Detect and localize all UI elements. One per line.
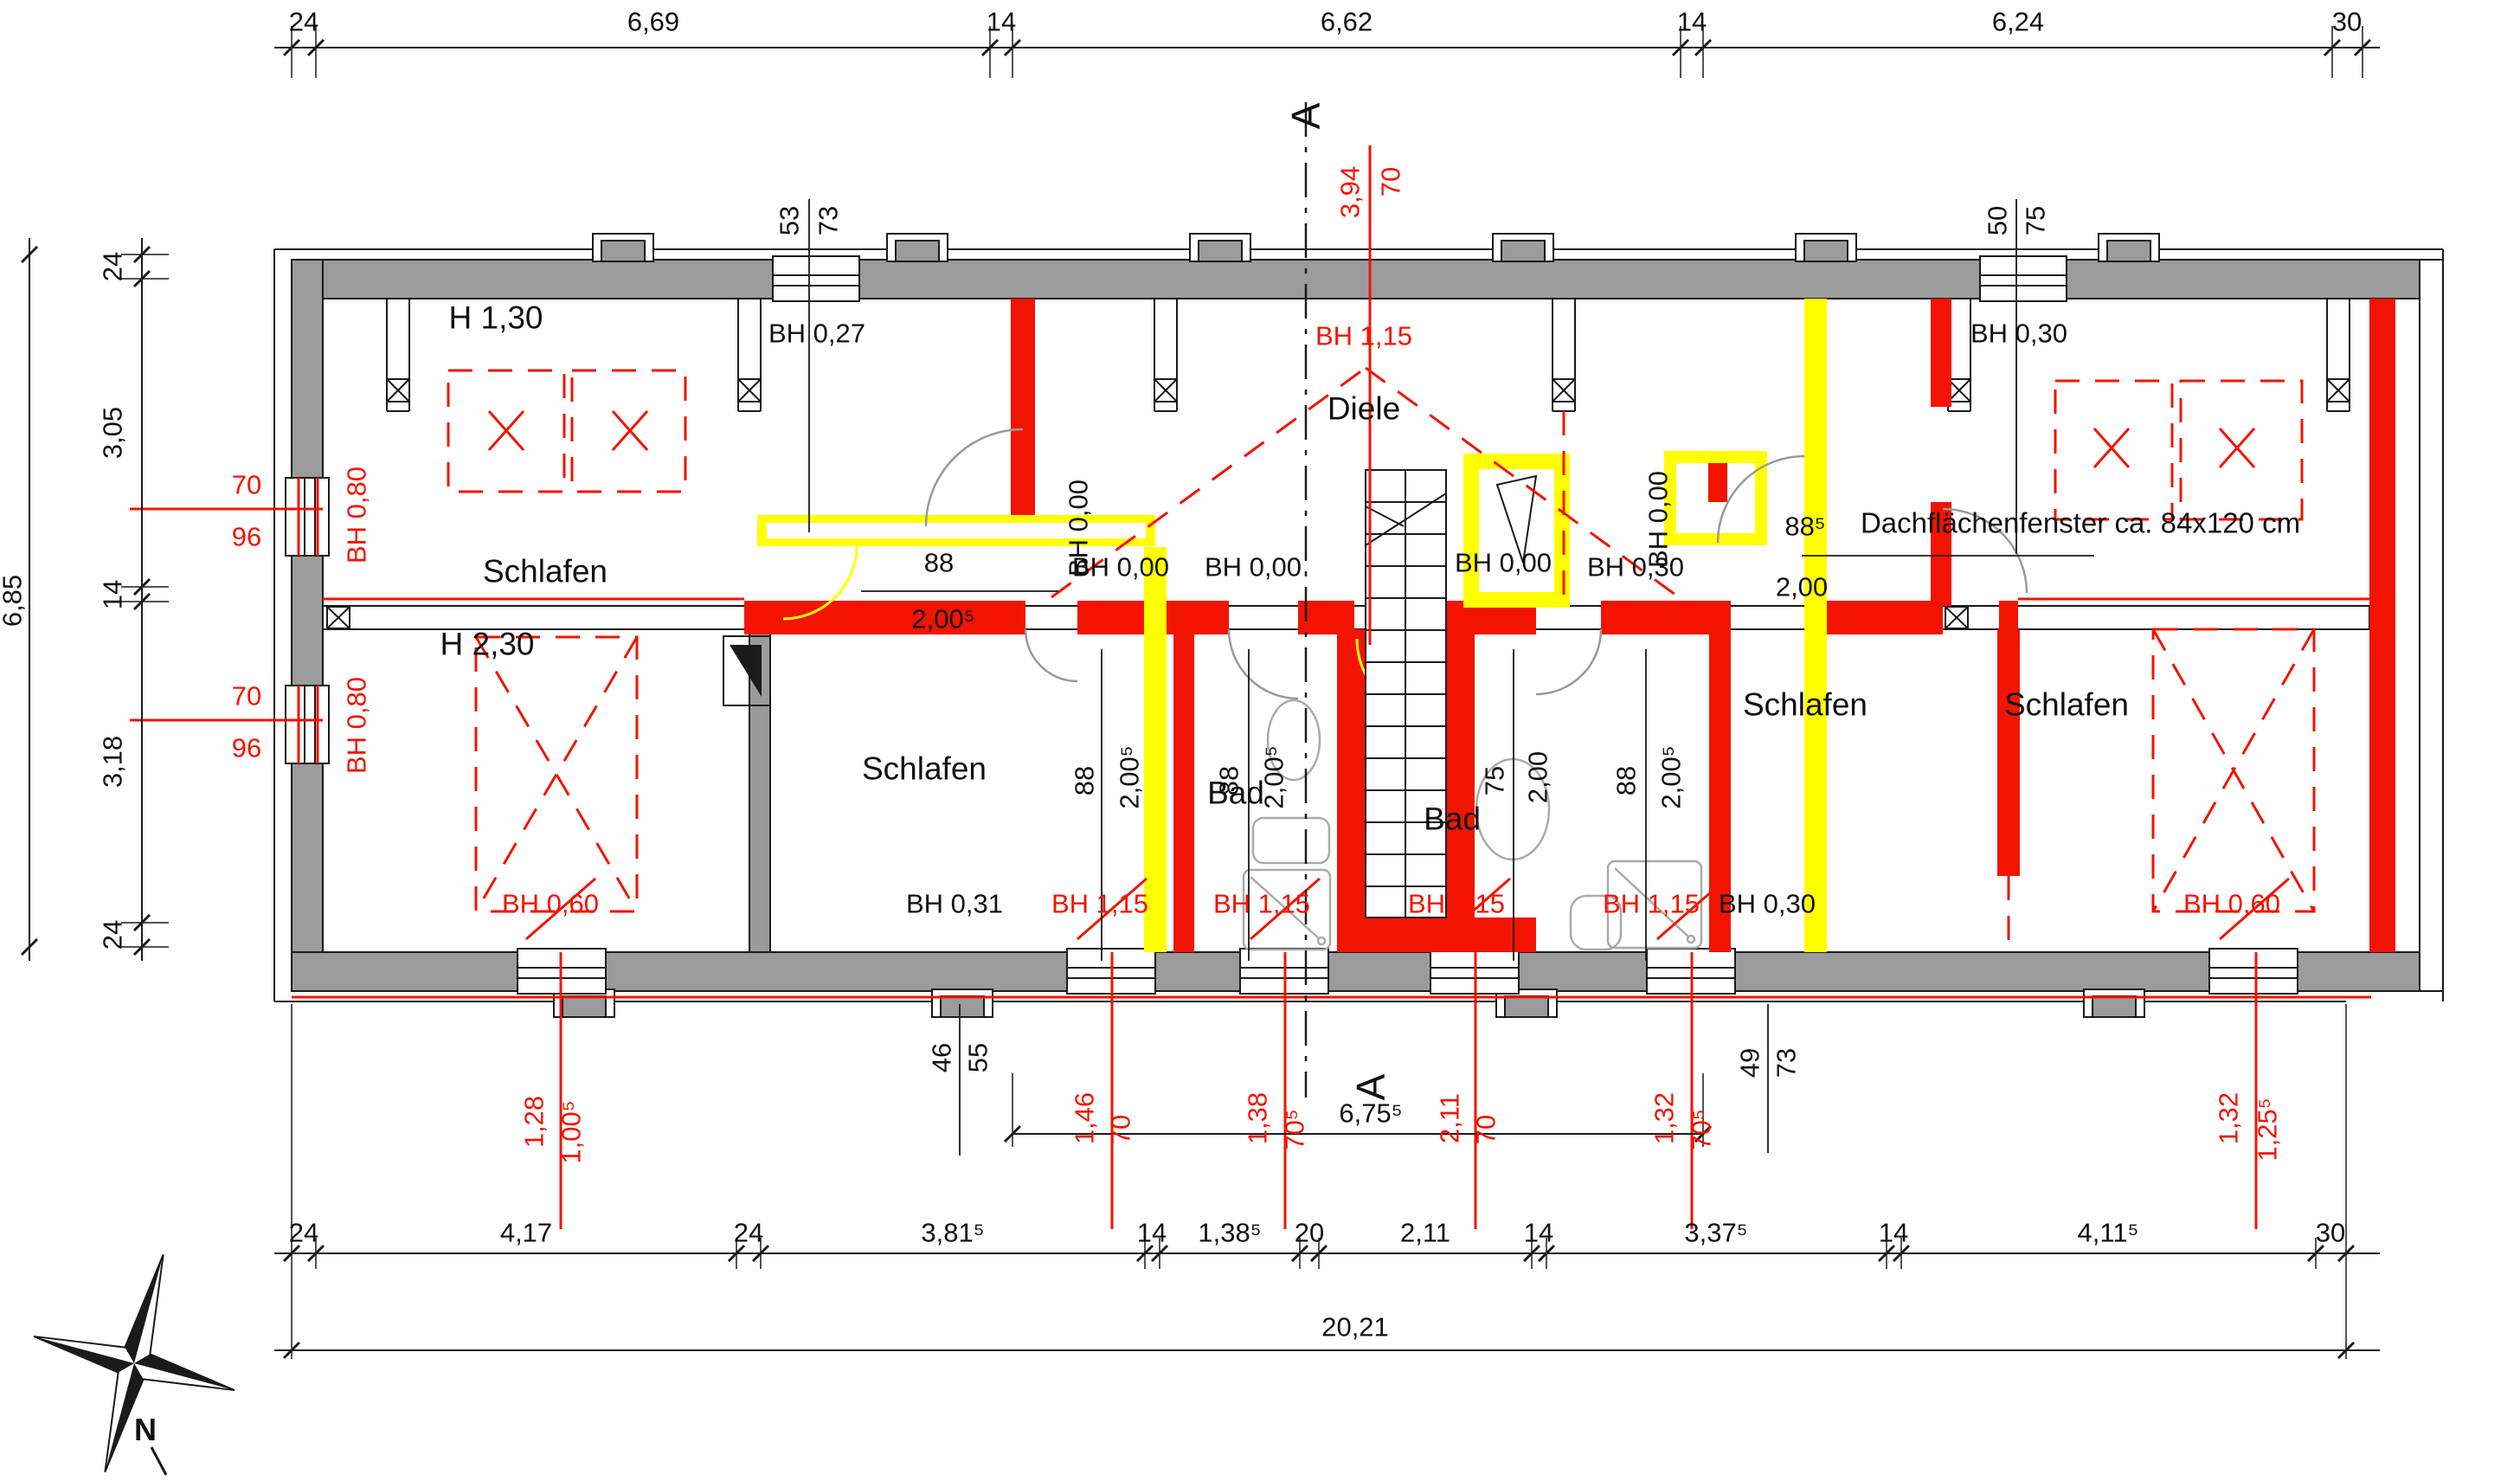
roof-window-note: Dachflächenfenster ca. 84x120 cm bbox=[1861, 509, 2300, 538]
win-bot-red1-b: 1,00⁵ bbox=[558, 1100, 585, 1163]
bh-115-1: BH 1,15 bbox=[1051, 891, 1148, 918]
door-low3-w: 75 bbox=[1482, 766, 1508, 795]
height-note-top-left: H 1,30 bbox=[448, 302, 543, 334]
dim-top-0: 24 bbox=[289, 9, 318, 35]
room-diele: Diele bbox=[1327, 393, 1400, 425]
dim-left-total: 6,85 bbox=[0, 575, 26, 627]
dim-bottom-partial: 6,75⁵ bbox=[1339, 1100, 1402, 1127]
stairs bbox=[1366, 470, 1446, 918]
bh-000-v2: BH 0,00 bbox=[1645, 471, 1672, 568]
win-bot-red5-a: 1,32 bbox=[1651, 1092, 1678, 1144]
win-bot-black1-a: 46 bbox=[929, 1043, 955, 1072]
plan-geometry bbox=[0, 0, 2520, 1481]
win-bot-red6-a: 1,32 bbox=[2215, 1092, 2242, 1144]
roof-window-dim-b: 70 bbox=[1378, 167, 1405, 196]
dim-top-4: 14 bbox=[1677, 9, 1707, 35]
door-low2-w: 88 bbox=[1216, 766, 1243, 795]
dim-bottom-3: 3,81⁵ bbox=[921, 1220, 984, 1246]
win-left1-b: 96 bbox=[232, 524, 261, 551]
door-top-left-h: 2,00⁵ bbox=[911, 606, 974, 633]
dim-left-4: 24 bbox=[100, 920, 126, 950]
room-schlafen-1: Schlafen bbox=[483, 556, 607, 588]
win-left1-bh: BH 0,80 bbox=[344, 467, 370, 563]
bh-000-1: BH 0,00 bbox=[1072, 554, 1169, 581]
win-bot-red2-b: 70 bbox=[1108, 1115, 1135, 1144]
win-bot-red6-b: 1,25⁵ bbox=[2254, 1098, 2281, 1161]
dim-bottom-12: 30 bbox=[2316, 1220, 2345, 1246]
dim-bottom-4: 14 bbox=[1137, 1220, 1167, 1246]
dim-left-0: 24 bbox=[100, 252, 126, 281]
win-bot-red2-a: 1,46 bbox=[1071, 1092, 1098, 1144]
dim-bottom-5: 1,38⁵ bbox=[1198, 1220, 1261, 1246]
dim-bottom-1: 4,17 bbox=[500, 1220, 552, 1246]
bh-060-left: BH 0,60 bbox=[502, 891, 599, 918]
bh-115-top: BH 1,15 bbox=[1315, 323, 1412, 350]
bh-031: BH 0,31 bbox=[906, 891, 1003, 918]
dim-bottom-total: 20,21 bbox=[1321, 1314, 1389, 1341]
room-schlafen-4: Schlafen bbox=[2004, 689, 2129, 721]
dim-bottom-9: 3,37⁵ bbox=[1684, 1220, 1747, 1246]
door-low4-w: 88 bbox=[1613, 766, 1640, 795]
win-left2-bh: BH 0,80 bbox=[344, 677, 370, 774]
win-left2-b: 96 bbox=[232, 735, 261, 762]
win-bot-red3-b: 70⁵ bbox=[1282, 1109, 1308, 1149]
bh-030-bottom: BH 0,30 bbox=[1719, 891, 1816, 918]
door-top-right-w: 88⁵ bbox=[1784, 513, 1825, 540]
win-bot-black2-b: 73 bbox=[1773, 1048, 1800, 1078]
compass-south-tail bbox=[151, 1447, 166, 1475]
win-bot-black2-a: 49 bbox=[1737, 1048, 1764, 1078]
win-bot-red4-a: 2,11 bbox=[1437, 1093, 1463, 1143]
bh-027: BH 0,27 bbox=[768, 320, 865, 347]
bh-000-2: BH 0,00 bbox=[1205, 554, 1302, 581]
door-low1-h: 2,00⁵ bbox=[1116, 745, 1143, 808]
dim-top-5: 6,24 bbox=[1992, 9, 2044, 35]
floor-plan: 24 6,69 14 6,62 14 6,24 30 24 3,05 14 3,… bbox=[0, 0, 2520, 1481]
win-left2-a: 70 bbox=[232, 683, 261, 710]
win-top2-a: 50 bbox=[1984, 206, 2011, 235]
dim-top-1: 6,69 bbox=[627, 9, 679, 35]
dim-left-1: 3,05 bbox=[100, 407, 126, 459]
dim-top-2: 14 bbox=[987, 9, 1016, 35]
section-marker-bottom: A bbox=[1351, 1074, 1391, 1101]
bh-115-3: BH 1,15 bbox=[1408, 891, 1505, 918]
win-bot-red4-b: 70 bbox=[1473, 1115, 1500, 1144]
dim-bottom-11: 4,11⁵ bbox=[2078, 1220, 2139, 1246]
bh-060-right: BH 0,60 bbox=[2183, 891, 2280, 918]
win-top2-b: 75 bbox=[2022, 206, 2049, 235]
dim-bottom-0: 24 bbox=[289, 1220, 318, 1246]
dim-top-3: 6,62 bbox=[1321, 9, 1372, 35]
win-bot-red5-b: 70⁵ bbox=[1688, 1109, 1715, 1149]
dim-bottom-7: 2,11 bbox=[1400, 1220, 1450, 1246]
door-top-left-w: 88 bbox=[924, 550, 954, 576]
win-bot-red1-a: 1,28 bbox=[521, 1096, 548, 1148]
win-bot-black1-b: 55 bbox=[965, 1043, 992, 1072]
bh-115-2: BH 1,15 bbox=[1213, 891, 1310, 918]
room-bad-2: Bad bbox=[1424, 803, 1481, 835]
dim-top-6: 30 bbox=[2332, 9, 2362, 35]
room-schlafen-3: Schlafen bbox=[1743, 689, 1867, 721]
height-note-bottom-left: H 2,30 bbox=[440, 628, 534, 660]
bh-115-4: BH 1,15 bbox=[1603, 891, 1700, 918]
room-schlafen-2: Schlafen bbox=[862, 753, 987, 785]
section-marker-top: A bbox=[1286, 103, 1326, 130]
door-low1-w: 88 bbox=[1071, 766, 1098, 795]
dim-left-3: 3,18 bbox=[100, 736, 126, 788]
bh-000-3: BH 0,00 bbox=[1455, 550, 1552, 576]
win-bot-red3-a: 1,38 bbox=[1244, 1092, 1271, 1144]
dim-left-2: 14 bbox=[100, 580, 126, 609]
door-top-right-h: 2,00 bbox=[1776, 574, 1828, 601]
win-left1-a: 70 bbox=[232, 472, 261, 499]
dim-bottom-10: 14 bbox=[1879, 1220, 1908, 1246]
door-low4-h: 2,00⁵ bbox=[1658, 745, 1685, 808]
win-top1-a: 53 bbox=[776, 206, 803, 235]
door-low3-h: 2,00 bbox=[1525, 751, 1552, 803]
roof-window-dim-a: 3,94 bbox=[1337, 166, 1364, 218]
compass-north-label: N bbox=[134, 1414, 157, 1446]
dim-bottom-6: 20 bbox=[1295, 1220, 1324, 1246]
door-low2-h: 2,00⁵ bbox=[1261, 745, 1288, 808]
win-top1-b: 73 bbox=[815, 206, 842, 235]
dim-bottom-8: 14 bbox=[1524, 1220, 1553, 1246]
dim-bottom-2: 24 bbox=[734, 1220, 763, 1246]
bh-030-top: BH 0,30 bbox=[1970, 320, 2067, 347]
